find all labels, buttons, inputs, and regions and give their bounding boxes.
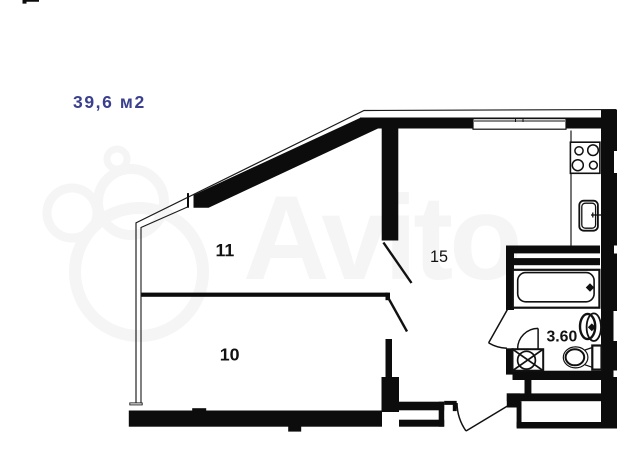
- svg-text:39,6 м2: 39,6 м2: [73, 92, 146, 112]
- svg-text:3.60: 3.60: [547, 329, 578, 346]
- svg-text:Avito: Avito: [243, 171, 519, 305]
- svg-text:10: 10: [220, 344, 240, 364]
- svg-text:15: 15: [430, 248, 448, 266]
- svg-text:11: 11: [215, 240, 234, 260]
